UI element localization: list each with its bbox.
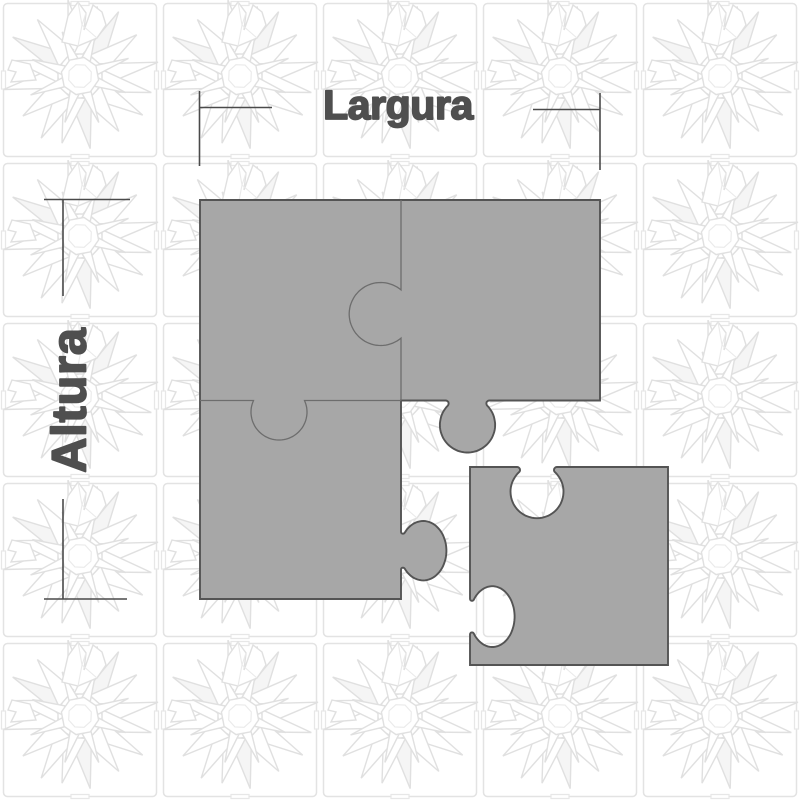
svg-text:Largura: Largura (323, 82, 474, 128)
svg-text:Altura: Altura (43, 327, 97, 473)
